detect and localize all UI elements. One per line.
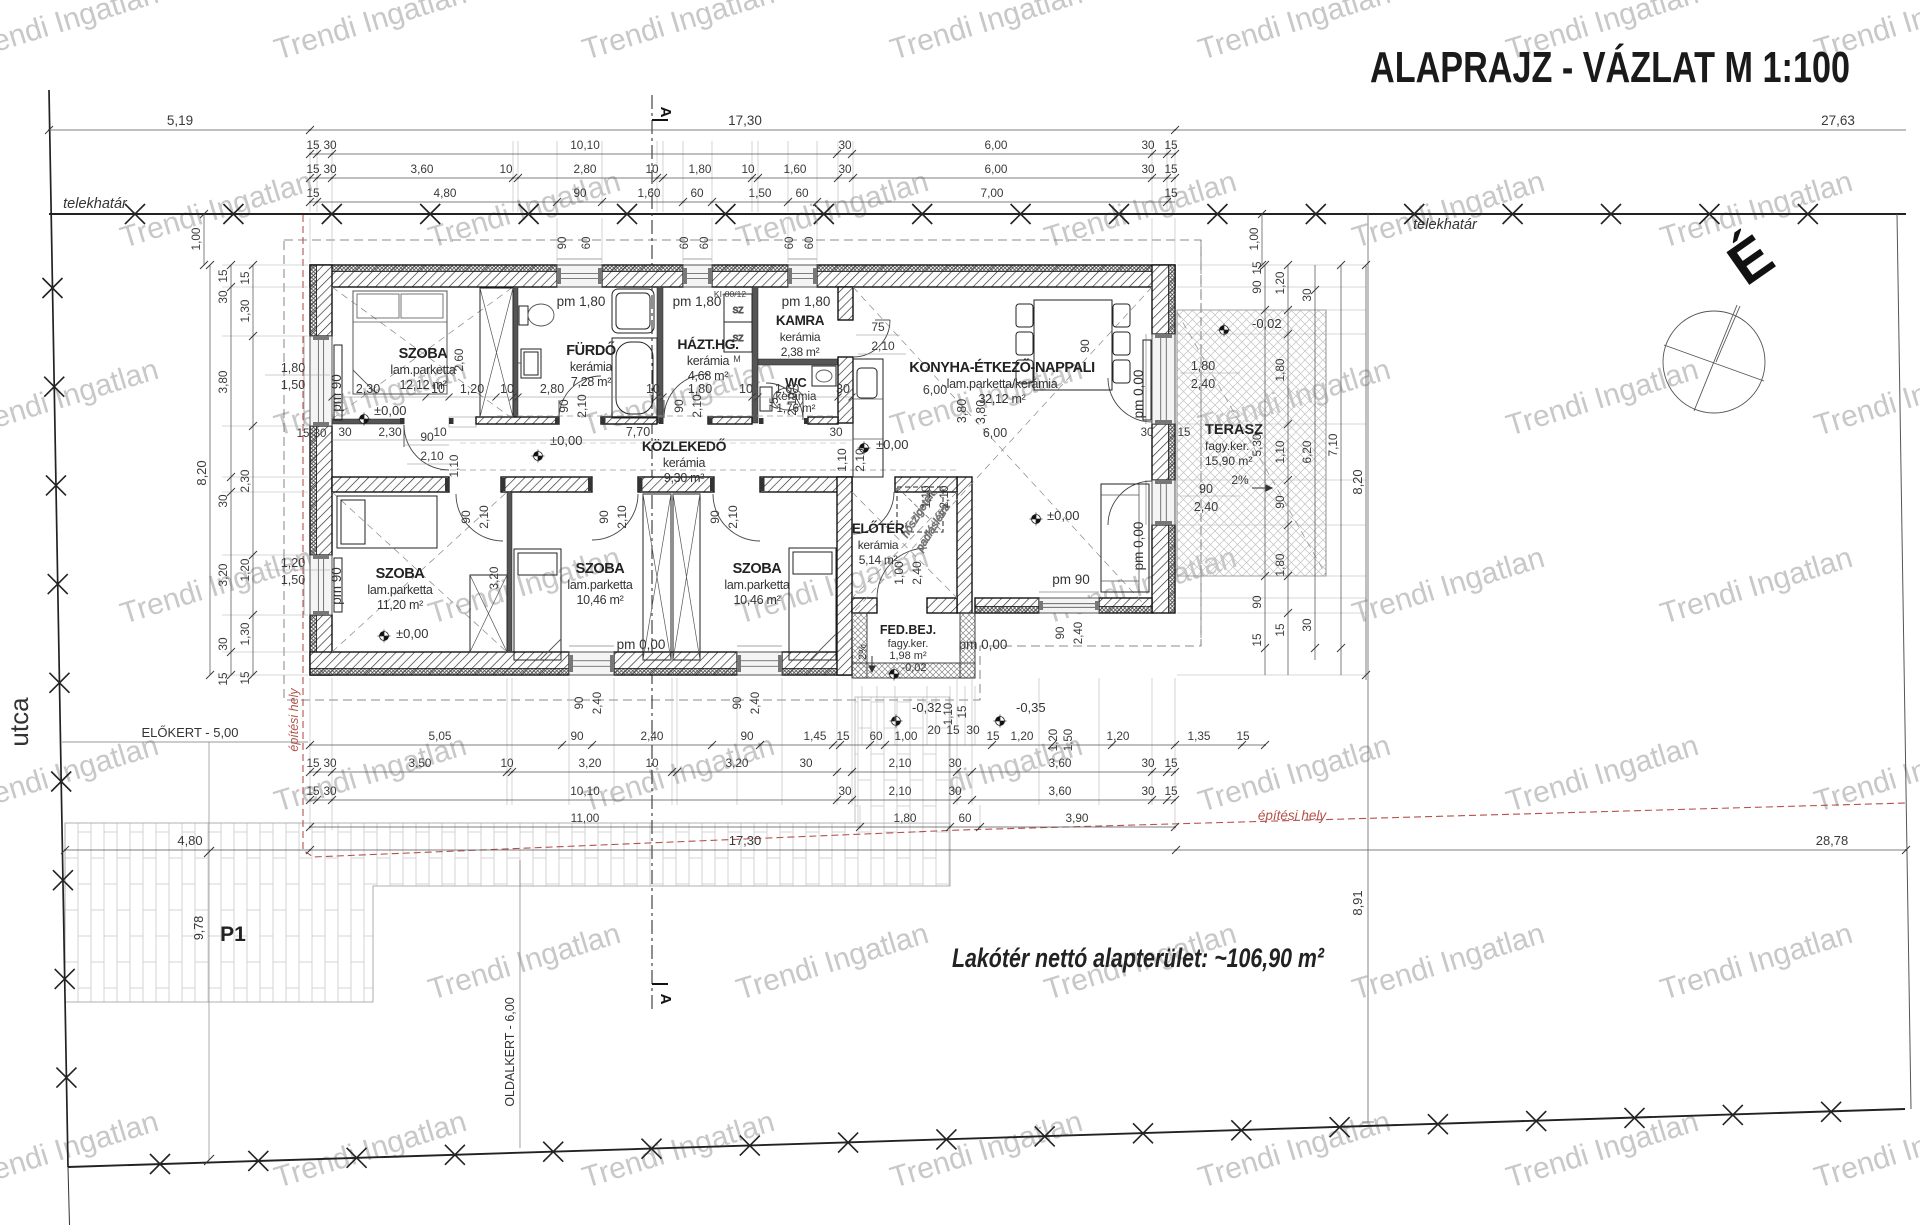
svg-text:2,40: 2,40	[1194, 500, 1218, 514]
svg-text:SZ: SZ	[733, 305, 744, 315]
svg-text:1,10: 1,10	[447, 454, 461, 477]
svg-text:pm 90: pm 90	[1052, 572, 1090, 587]
svg-text:KI-80/12: KI-80/12	[714, 289, 746, 299]
svg-text:1,60: 1,60	[784, 162, 807, 176]
svg-text:2,10: 2,10	[871, 339, 895, 353]
svg-text:építési hely: építési hely	[1258, 808, 1328, 823]
svg-text:kerámia: kerámia	[687, 354, 730, 368]
svg-text:1,20: 1,20	[1048, 729, 1060, 751]
svg-text:±0,00: ±0,00	[1047, 508, 1079, 523]
svg-text:10,10: 10,10	[570, 784, 600, 798]
svg-text:kerámia: kerámia	[780, 330, 821, 344]
svg-text:4,80: 4,80	[177, 833, 202, 848]
svg-text:1,80: 1,80	[1191, 359, 1215, 373]
svg-text:3,80: 3,80	[955, 399, 969, 423]
svg-text:90: 90	[557, 399, 571, 413]
svg-text:15: 15	[1236, 729, 1250, 743]
svg-text:pm 1,80: pm 1,80	[782, 294, 831, 309]
svg-text:30: 30	[829, 425, 843, 439]
svg-text:10: 10	[739, 382, 753, 396]
svg-text:30: 30	[1300, 288, 1314, 302]
svg-text:5,19: 5,19	[167, 113, 193, 128]
svg-text:1,00: 1,00	[892, 561, 906, 585]
svg-text:15: 15	[1164, 756, 1178, 770]
svg-text:30: 30	[338, 425, 352, 439]
svg-text:7,70: 7,70	[626, 425, 650, 439]
svg-text:27,63: 27,63	[1821, 113, 1855, 128]
svg-text:15: 15	[1273, 623, 1287, 637]
svg-text:4,68 m²: 4,68 m²	[688, 369, 728, 383]
svg-text:lam.parketta/kerámia: lam.parketta/kerámia	[947, 377, 1058, 391]
svg-text:10,10: 10,10	[570, 138, 600, 152]
svg-text:30: 30	[948, 784, 962, 798]
svg-text:1,80: 1,80	[894, 811, 917, 825]
svg-text:90: 90	[570, 729, 584, 743]
svg-text:30: 30	[314, 428, 327, 440]
svg-text:11,20 m²: 11,20 m²	[377, 598, 423, 612]
svg-text:15: 15	[306, 756, 320, 770]
svg-text:2,10: 2,10	[575, 394, 589, 418]
svg-text:5,05: 5,05	[429, 729, 452, 743]
svg-text:10: 10	[645, 162, 659, 176]
svg-text:OLDALKERT - 6,00: OLDALKERT - 6,00	[503, 997, 517, 1106]
svg-text:30: 30	[323, 162, 337, 176]
svg-text:90: 90	[574, 697, 586, 710]
svg-text:30: 30	[1141, 138, 1155, 152]
svg-text:6,20: 6,20	[1300, 440, 1314, 463]
svg-text:11,00: 11,00	[571, 811, 600, 825]
svg-text:pm 0,00: pm 0,00	[617, 637, 666, 652]
svg-text:3,60: 3,60	[411, 162, 434, 176]
svg-text:60: 60	[690, 186, 704, 200]
svg-text:90: 90	[1078, 339, 1092, 353]
svg-text:A: A	[657, 107, 674, 118]
svg-text:pm 0,00: pm 0,00	[1131, 522, 1146, 571]
svg-text:3,20: 3,20	[216, 563, 230, 586]
svg-text:1,20: 1,20	[1107, 729, 1130, 743]
svg-text:±0,00: ±0,00	[374, 403, 406, 418]
svg-text:2,10: 2,10	[690, 394, 704, 418]
svg-text:90: 90	[597, 510, 611, 524]
svg-text:15: 15	[1164, 784, 1178, 798]
svg-text:30: 30	[216, 494, 230, 508]
svg-text:15: 15	[297, 428, 310, 440]
svg-text:90: 90	[672, 399, 686, 413]
svg-text:P1: P1	[220, 923, 246, 946]
svg-text:15: 15	[1164, 138, 1178, 152]
svg-text:1,98 m²: 1,98 m²	[889, 650, 927, 662]
svg-text:ELŐTÉR: ELŐTÉR	[852, 521, 905, 536]
svg-text:30: 30	[1141, 756, 1155, 770]
svg-text:KÖZLEKEDŐ: KÖZLEKEDŐ	[642, 437, 727, 454]
svg-text:±0,00: ±0,00	[396, 626, 428, 641]
svg-text:10: 10	[500, 382, 514, 396]
svg-text:28,78: 28,78	[1816, 833, 1849, 848]
svg-text:1,20: 1,20	[238, 558, 252, 581]
svg-text:pm 90: pm 90	[329, 374, 344, 412]
svg-text:3,90: 3,90	[1066, 811, 1089, 825]
svg-text:3,60: 3,60	[1049, 784, 1072, 798]
svg-text:2,10: 2,10	[889, 784, 912, 798]
svg-text:60: 60	[958, 811, 972, 825]
svg-text:2,40: 2,40	[750, 692, 762, 714]
svg-text:17,30: 17,30	[729, 833, 762, 848]
svg-text:SZOBA: SZOBA	[376, 566, 426, 582]
svg-text:Lakótér nettó alapterület: ~10: Lakótér nettó alapterület: ~106,90 m²	[952, 943, 1325, 973]
svg-text:1,00: 1,00	[189, 227, 203, 250]
svg-text:SZOBA: SZOBA	[733, 561, 783, 577]
svg-text:2,10: 2,10	[785, 392, 799, 416]
svg-text:3,80: 3,80	[216, 370, 230, 393]
svg-text:90: 90	[459, 510, 473, 524]
svg-text:10: 10	[499, 162, 513, 176]
svg-text:30: 30	[966, 723, 980, 737]
svg-text:1,20: 1,20	[1011, 729, 1034, 743]
svg-text:A: A	[657, 994, 674, 1005]
svg-text:15: 15	[238, 671, 252, 685]
svg-text:pm 0,00: pm 0,00	[1131, 370, 1146, 419]
svg-text:3,50: 3,50	[409, 756, 432, 770]
svg-text:60: 60	[784, 237, 796, 250]
svg-text:1,30: 1,30	[238, 622, 252, 645]
svg-text:30: 30	[1300, 618, 1314, 632]
svg-text:30: 30	[799, 756, 813, 770]
svg-text:60: 60	[804, 237, 816, 250]
svg-text:15: 15	[238, 271, 252, 285]
svg-text:10: 10	[433, 425, 447, 439]
svg-text:15,90 m²: 15,90 m²	[1205, 454, 1252, 468]
svg-text:1,10: 1,10	[919, 485, 933, 508]
svg-text:30: 30	[323, 784, 337, 798]
svg-text:10,46 m²: 10,46 m²	[577, 593, 624, 607]
svg-text:30: 30	[948, 756, 962, 770]
svg-text:1,30: 1,30	[238, 299, 252, 322]
svg-text:1,10: 1,10	[943, 703, 955, 725]
svg-text:15: 15	[957, 706, 969, 719]
svg-text:3,20: 3,20	[579, 756, 602, 770]
svg-text:90: 90	[420, 430, 434, 444]
svg-text:2,80: 2,80	[540, 382, 564, 396]
svg-text:2%: 2%	[857, 644, 869, 660]
svg-text:2,40: 2,40	[592, 692, 604, 714]
svg-text:90: 90	[708, 510, 722, 524]
svg-text:30: 30	[1141, 784, 1155, 798]
svg-text:1,50: 1,50	[749, 186, 772, 200]
svg-text:10: 10	[645, 756, 659, 770]
svg-text:2,10: 2,10	[937, 485, 951, 508]
svg-text:10: 10	[431, 382, 445, 396]
svg-text:1,50: 1,50	[281, 378, 305, 392]
svg-text:ELŐKERT - 5,00: ELŐKERT - 5,00	[141, 725, 238, 740]
svg-text:3,80: 3,80	[974, 400, 988, 424]
svg-text:HÁZT.HG.: HÁZT.HG.	[677, 336, 738, 352]
svg-text:15: 15	[306, 784, 320, 798]
svg-text:kerámia: kerámia	[663, 456, 706, 470]
svg-text:7,28 m²: 7,28 m²	[571, 375, 611, 389]
svg-text:2,30: 2,30	[378, 425, 402, 439]
svg-text:15: 15	[1178, 427, 1191, 439]
svg-text:telekhatár: telekhatár	[63, 196, 128, 212]
svg-text:75: 75	[871, 320, 885, 334]
svg-text:90: 90	[1055, 627, 1067, 640]
svg-text:kerámia: kerámia	[858, 538, 899, 552]
svg-text:30: 30	[216, 290, 230, 304]
svg-text:telekhatár: telekhatár	[1413, 217, 1478, 233]
svg-text:1,80: 1,80	[1273, 553, 1287, 576]
svg-text:lam.parketta: lam.parketta	[567, 578, 633, 592]
svg-text:2,30: 2,30	[356, 382, 380, 396]
svg-text:30: 30	[838, 784, 852, 798]
svg-text:30: 30	[323, 756, 337, 770]
svg-text:2,10: 2,10	[889, 756, 912, 770]
svg-text:FED.BEJ.: FED.BEJ.	[880, 623, 936, 637]
svg-text:2,40: 2,40	[641, 729, 664, 743]
svg-text:2,40: 2,40	[1191, 377, 1215, 391]
svg-text:1,60: 1,60	[638, 186, 661, 200]
svg-text:10: 10	[500, 756, 514, 770]
svg-text:2,10: 2,10	[853, 448, 867, 472]
svg-text:2,60: 2,60	[452, 348, 466, 371]
svg-text:30: 30	[216, 637, 230, 651]
svg-text:1,80: 1,80	[281, 361, 305, 375]
svg-text:SZOBA: SZOBA	[399, 346, 449, 362]
svg-text:2,80: 2,80	[574, 162, 597, 176]
svg-text:60: 60	[699, 237, 711, 250]
svg-text:90: 90	[1273, 495, 1287, 509]
svg-text:2,30: 2,30	[238, 469, 252, 492]
svg-text:20: 20	[927, 723, 941, 737]
svg-text:2,10: 2,10	[615, 505, 629, 529]
svg-text:10: 10	[646, 382, 660, 396]
svg-text:90: 90	[1199, 482, 1213, 496]
svg-text:60: 60	[679, 237, 691, 250]
svg-text:1,45: 1,45	[804, 729, 827, 743]
svg-text:-0,02: -0,02	[1252, 316, 1282, 331]
svg-text:90: 90	[740, 729, 754, 743]
svg-text:1,50: 1,50	[281, 573, 305, 587]
svg-text:1,80: 1,80	[688, 382, 712, 396]
svg-text:30: 30	[1141, 427, 1154, 439]
svg-text:2,10: 2,10	[477, 505, 491, 529]
svg-text:3,20: 3,20	[726, 756, 749, 770]
svg-text:lam.parketta: lam.parketta	[390, 363, 456, 377]
svg-text:2,10: 2,10	[420, 449, 444, 463]
svg-text:1,20: 1,20	[460, 382, 484, 396]
svg-text:15: 15	[306, 186, 320, 200]
svg-text:60: 60	[869, 729, 883, 743]
svg-text:17,30: 17,30	[728, 113, 762, 128]
svg-text:7,00: 7,00	[981, 186, 1004, 200]
svg-text:2,40: 2,40	[910, 561, 924, 585]
svg-text:pm 1,80: pm 1,80	[557, 294, 606, 309]
svg-text:6,00: 6,00	[983, 426, 1007, 440]
svg-text:7,10: 7,10	[1326, 433, 1340, 456]
svg-text:30: 30	[1141, 162, 1155, 176]
svg-text:30: 30	[836, 382, 850, 396]
svg-text:8,20: 8,20	[194, 460, 209, 485]
svg-text:90: 90	[557, 237, 569, 250]
svg-text:KONYHA-ÉTKEZŐ-NAPPALI: KONYHA-ÉTKEZŐ-NAPPALI	[909, 358, 1095, 376]
svg-text:1,50: 1,50	[1063, 729, 1075, 751]
svg-text:15: 15	[1164, 162, 1178, 176]
svg-text:1,20: 1,20	[281, 556, 305, 570]
svg-text:M: M	[733, 354, 741, 364]
svg-text:lam.parketta: lam.parketta	[367, 583, 433, 597]
svg-text:1,35: 1,35	[1188, 729, 1211, 743]
svg-text:9,78: 9,78	[192, 916, 206, 940]
svg-text:4,80: 4,80	[434, 186, 457, 200]
svg-text:90: 90	[573, 186, 587, 200]
svg-text:6,00: 6,00	[985, 162, 1008, 176]
svg-text:fagy.ker.: fagy.ker.	[1205, 439, 1249, 453]
svg-text:8,20: 8,20	[1350, 469, 1365, 494]
svg-text:1,80: 1,80	[1273, 358, 1287, 381]
svg-text:3,60: 3,60	[1049, 756, 1072, 770]
svg-text:fagy.ker.: fagy.ker.	[888, 638, 929, 650]
svg-text:kerámia: kerámia	[570, 360, 613, 374]
svg-text:lam.parketta: lam.parketta	[724, 578, 790, 592]
svg-text:1,10: 1,10	[835, 448, 849, 472]
svg-text:pm 90: pm 90	[329, 567, 344, 605]
svg-text:-0,02: -0,02	[901, 662, 926, 674]
svg-text:30: 30	[838, 162, 852, 176]
svg-text:5,30: 5,30	[1250, 433, 1264, 456]
svg-text:3,20: 3,20	[487, 566, 501, 589]
svg-text:1,10: 1,10	[1273, 440, 1287, 463]
svg-text:-0,35: -0,35	[1016, 700, 1046, 715]
svg-text:90: 90	[1250, 595, 1264, 609]
svg-text:1,00: 1,00	[1247, 227, 1261, 250]
svg-text:75: 75	[767, 397, 781, 411]
svg-text:pm 0,00: pm 0,00	[959, 637, 1008, 652]
svg-text:90: 90	[732, 697, 744, 710]
svg-text:15: 15	[306, 162, 320, 176]
svg-text:9,30 m²: 9,30 m²	[664, 471, 704, 485]
svg-text:15: 15	[216, 672, 230, 686]
svg-text:KAMRA: KAMRA	[776, 313, 825, 328]
svg-text:60: 60	[795, 186, 809, 200]
svg-text:±0,00: ±0,00	[876, 437, 908, 452]
svg-text:utca: utca	[4, 697, 34, 747]
svg-text:15: 15	[986, 729, 1000, 743]
svg-text:1,00: 1,00	[895, 729, 918, 743]
svg-text:2,38 m²: 2,38 m²	[781, 345, 820, 359]
svg-text:15: 15	[1250, 633, 1264, 647]
svg-text:SZOBA: SZOBA	[576, 561, 626, 577]
svg-text:6,00: 6,00	[923, 383, 947, 397]
svg-text:60: 60	[581, 237, 593, 250]
svg-text:30: 30	[838, 138, 852, 152]
svg-text:2,40: 2,40	[1073, 622, 1085, 644]
svg-text:6,00: 6,00	[985, 138, 1008, 152]
svg-text:15: 15	[1164, 186, 1178, 200]
svg-text:15: 15	[216, 269, 230, 283]
svg-text:30: 30	[323, 138, 337, 152]
svg-text:2,10: 2,10	[726, 505, 740, 529]
svg-text:10: 10	[741, 162, 755, 176]
svg-text:±0,00: ±0,00	[550, 433, 582, 448]
svg-text:1,20: 1,20	[1273, 271, 1287, 294]
svg-text:8,91: 8,91	[1350, 890, 1365, 915]
svg-text:15: 15	[306, 138, 320, 152]
svg-text:90: 90	[1250, 280, 1264, 294]
svg-text:10,46 m²: 10,46 m²	[734, 593, 781, 607]
svg-text:15: 15	[836, 729, 850, 743]
svg-text:ALAPRAJZ - VÁZLAT M 1:100: ALAPRAJZ - VÁZLAT M 1:100	[1370, 42, 1850, 92]
svg-text:1,80: 1,80	[689, 162, 712, 176]
svg-text:FÜRDŐ: FÜRDŐ	[566, 341, 616, 359]
